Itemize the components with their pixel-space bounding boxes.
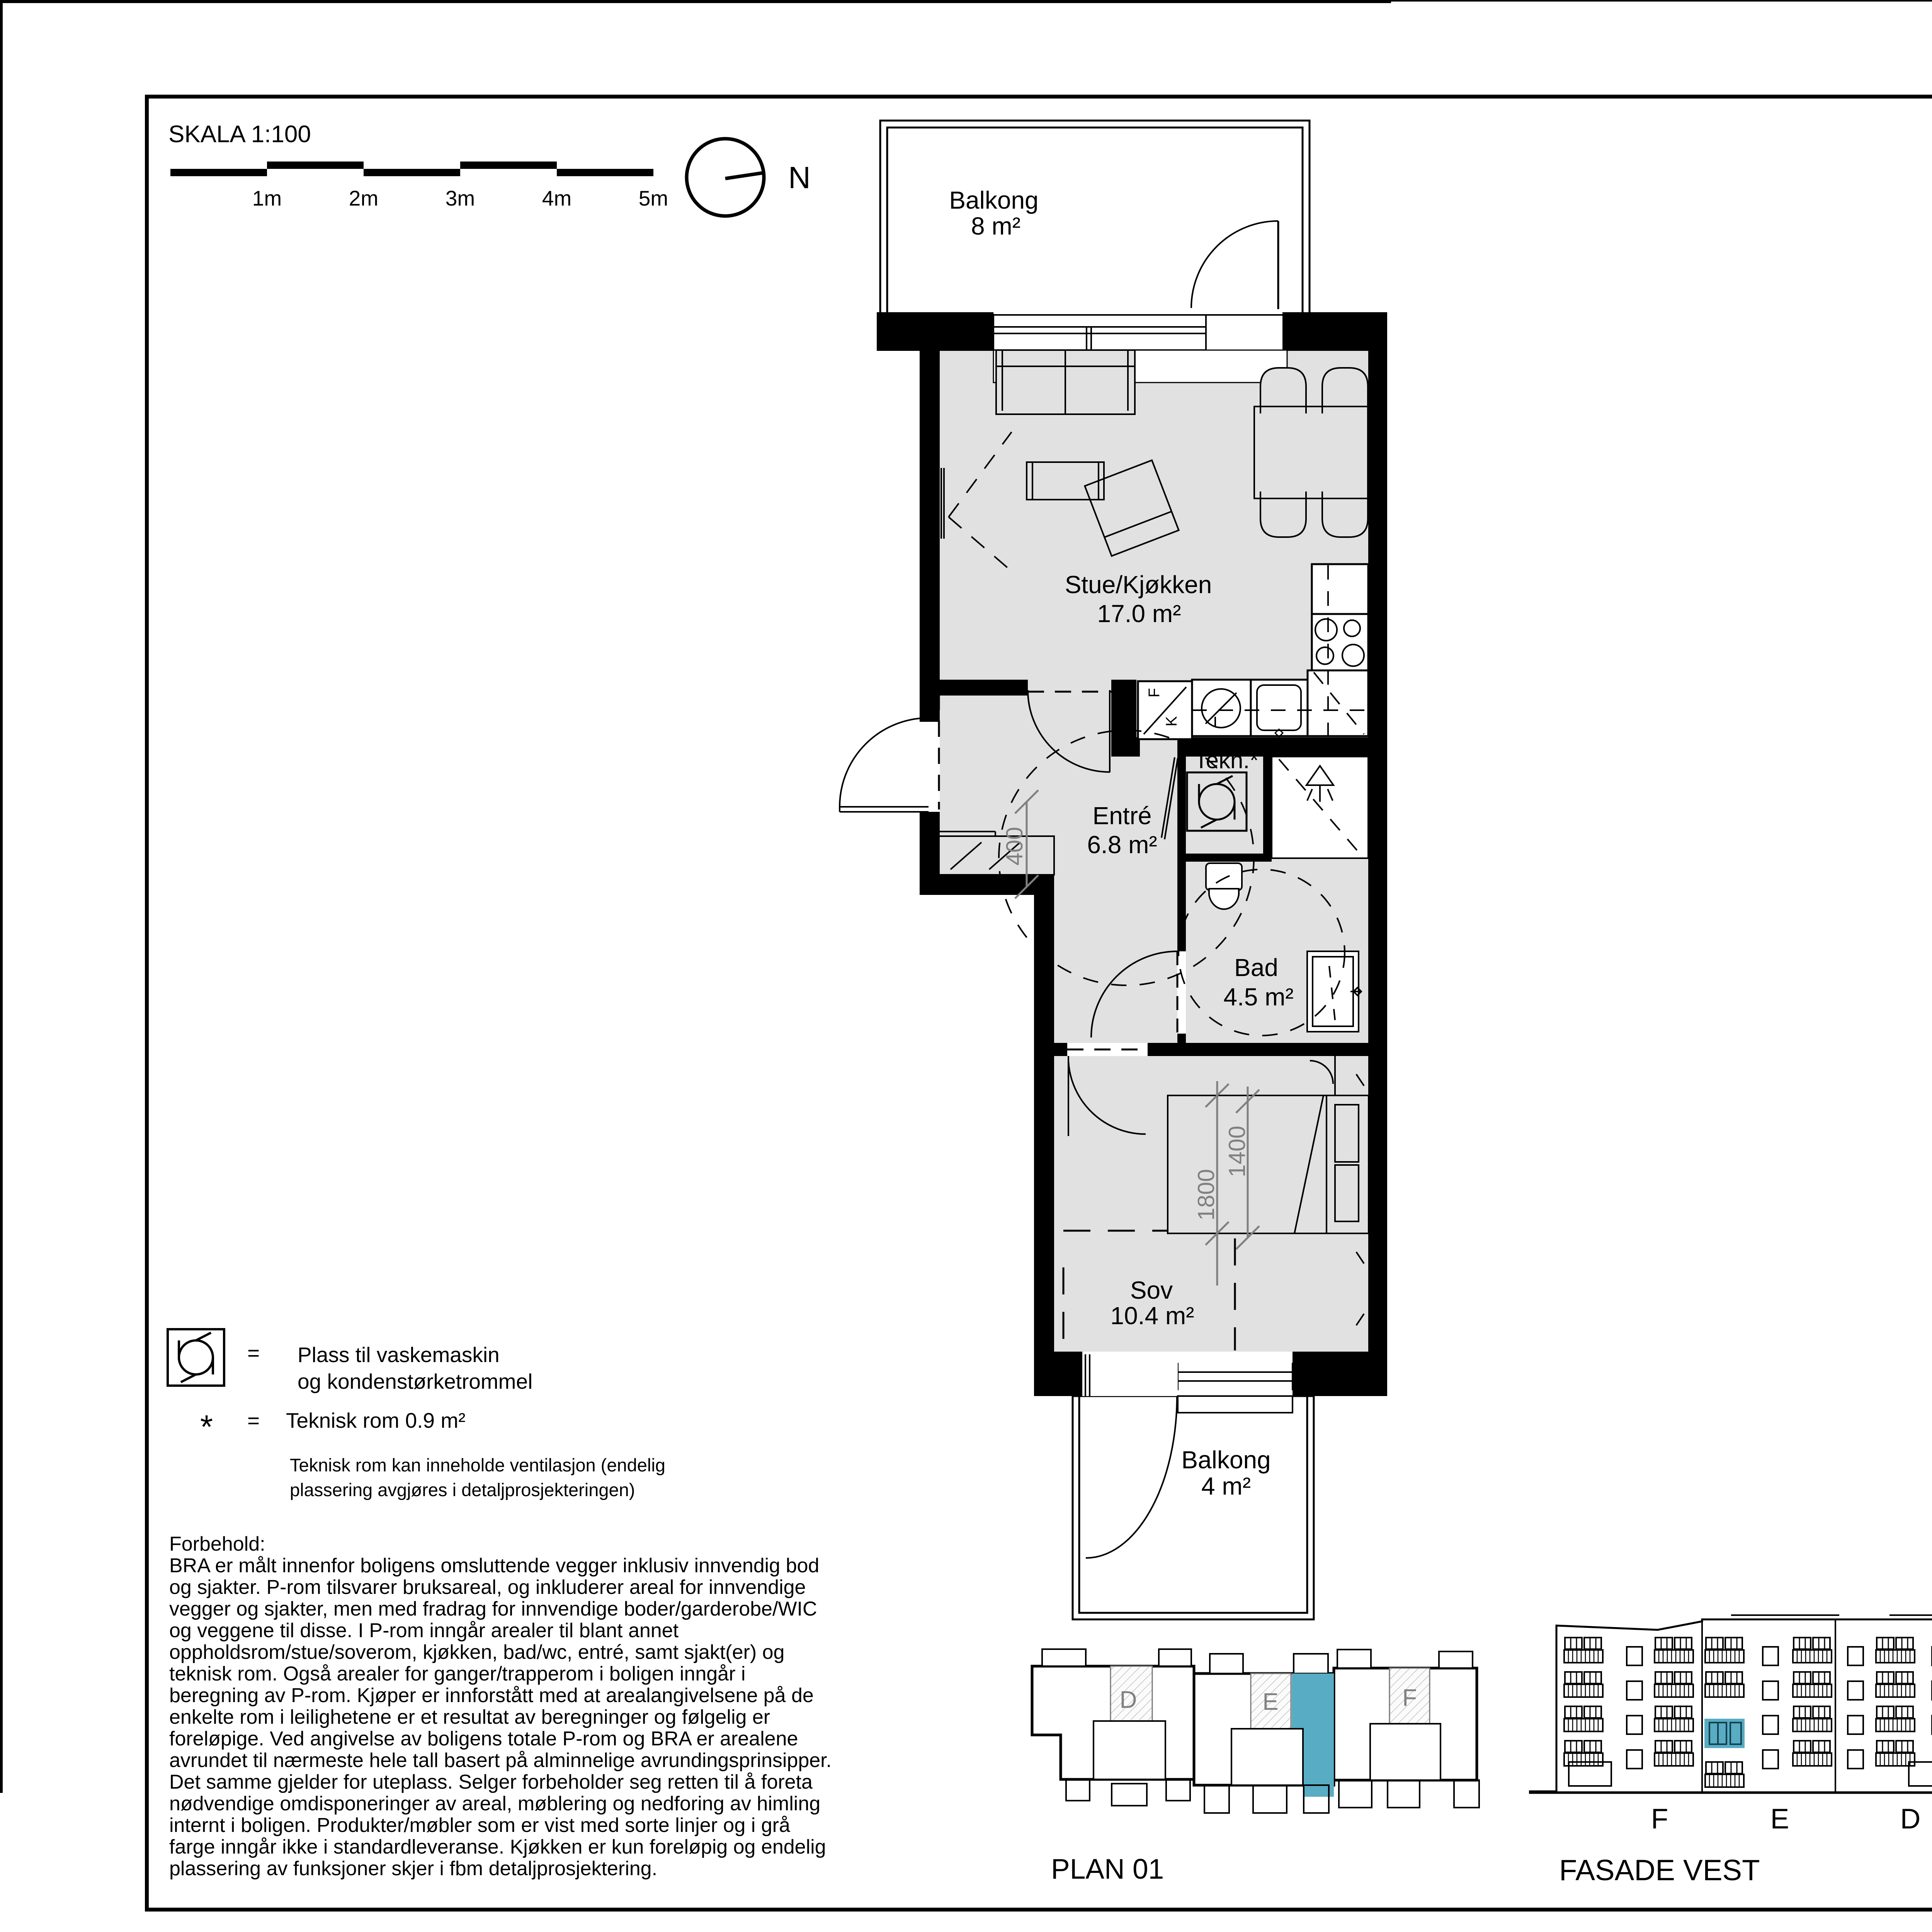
svg-text:Det samme gjelder for uteplass: Det samme gjelder for uteplass. Selger f… (169, 1771, 813, 1793)
svg-text:4m: 4m (542, 186, 571, 210)
svg-text:17.0 m²: 17.0 m² (1097, 600, 1181, 628)
svg-text:8 m²: 8 m² (971, 212, 1020, 240)
svg-text:nødvendige omdisponeringer av: nødvendige omdisponeringer av areal, møb… (169, 1793, 820, 1815)
svg-text:*: * (200, 1409, 213, 1446)
svg-text:PLAN 01: PLAN 01 (1051, 1854, 1164, 1885)
svg-text:E: E (1770, 1803, 1789, 1835)
svg-text:4 m²: 4 m² (1201, 1472, 1251, 1500)
svg-text:Balkong: Balkong (949, 186, 1038, 214)
svg-text:=: = (247, 1341, 260, 1365)
svg-text:D: D (1120, 1687, 1137, 1713)
svg-text:og sjakter. P-rom tilsvarer br: og sjakter. P-rom tilsvarer bruksareal, … (169, 1576, 806, 1599)
svg-text:F: F (1146, 688, 1163, 697)
svg-text:SKALA 1:100: SKALA 1:100 (168, 121, 311, 148)
svg-text:4.5 m²: 4.5 m² (1223, 983, 1293, 1011)
svg-text:E: E (1262, 1689, 1278, 1715)
svg-text:Tekn.*: Tekn.* (1194, 747, 1259, 773)
svg-text:og kondenstørketrommel: og kondenstørketrommel (298, 1369, 532, 1393)
svg-text:plassering avgjøres i detaljpr: plassering avgjøres i detaljprosjekterin… (290, 1480, 635, 1500)
svg-text:6.8 m²: 6.8 m² (1087, 831, 1157, 859)
svg-text:Stue/Kjøkken: Stue/Kjøkken (1065, 571, 1212, 599)
svg-text:N: N (788, 160, 811, 195)
svg-text:Entré: Entré (1093, 802, 1152, 830)
svg-text:1m: 1m (252, 186, 282, 210)
svg-text:og veggene til disse. I P-rom: og veggene til disse. I P-rom inngår are… (169, 1619, 679, 1642)
svg-text:10.4 m²: 10.4 m² (1111, 1302, 1194, 1330)
svg-text:Plass til vaskemaskin: Plass til vaskemaskin (298, 1343, 500, 1367)
svg-text:F: F (1651, 1803, 1668, 1835)
svg-text:Bad: Bad (1234, 954, 1278, 981)
svg-text:=: = (247, 1408, 260, 1432)
svg-text:BRA er målt innenfor boligens: BRA er målt innenfor boligens omsluttend… (169, 1554, 819, 1577)
svg-text:avrundet til nærmeste hele tal: avrundet til nærmeste hele tall basert p… (169, 1749, 832, 1772)
svg-text:beregning av P-rom. Kjøper er: beregning av P-rom. Kjøper er innforståt… (169, 1684, 814, 1707)
svg-text:K: K (1163, 716, 1180, 726)
svg-text:foreløpige. Ved angivelse av b: foreløpige. Ved angivelse av boligens to… (169, 1728, 798, 1750)
svg-text:5m: 5m (639, 186, 668, 210)
svg-text:F: F (1402, 1685, 1417, 1711)
svg-text:Forbehold:: Forbehold: (169, 1533, 265, 1555)
svg-text:plassering av funksjoner skjer: plassering av funksjoner skjer i fbm det… (169, 1857, 657, 1880)
svg-text:3m: 3m (446, 186, 475, 210)
svg-text:teknisk rom. Også arealer for: teknisk rom. Også arealer for ganger/tra… (169, 1663, 745, 1685)
svg-text:400: 400 (1002, 827, 1027, 866)
svg-text:2m: 2m (349, 186, 378, 210)
svg-text:enkelte rom i leilighetene er: enkelte rom i leilighetene er et resulta… (169, 1706, 770, 1728)
svg-text:FASADE VEST: FASADE VEST (1559, 1854, 1760, 1887)
svg-text:Teknisk rom 0.9 m²: Teknisk rom 0.9 m² (286, 1408, 466, 1432)
svg-text:Balkong: Balkong (1181, 1446, 1270, 1474)
svg-text:1800: 1800 (1193, 1169, 1219, 1220)
svg-text:1400: 1400 (1224, 1126, 1250, 1177)
svg-text:D: D (1900, 1803, 1921, 1835)
svg-text:vegger og sjakter, men med fra: vegger og sjakter, men med fradrag for i… (169, 1598, 817, 1620)
svg-text:farge inngår ikke i standardle: farge inngår ikke i standardleveranse. K… (169, 1836, 826, 1858)
svg-text:internt i boligen. Produkter/m: internt i boligen. Produkter/møbler som … (169, 1814, 790, 1837)
svg-text:oppholdsrom/stue/soverom, kjøk: oppholdsrom/stue/soverom, kjøkken, bad/w… (169, 1641, 784, 1663)
svg-text:Sov: Sov (1130, 1276, 1173, 1304)
svg-text:Teknisk rom kan inneholde vent: Teknisk rom kan inneholde ventilasjon (e… (290, 1455, 665, 1475)
